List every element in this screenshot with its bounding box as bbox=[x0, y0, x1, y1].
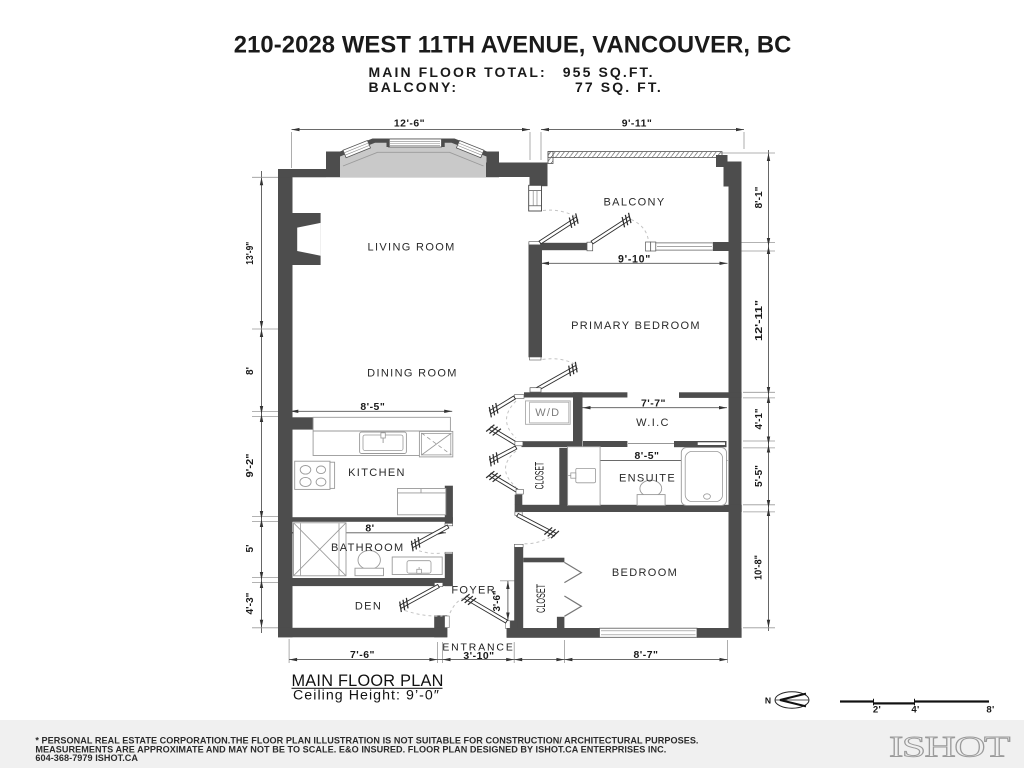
svg-text:604-368-7979 ISHOT.CA: 604-368-7979 ISHOT.CA bbox=[35, 753, 138, 763]
svg-text:ISHOT: ISHOT bbox=[889, 732, 1010, 764]
svg-text:MAIN FLOOR TOTAL:: MAIN FLOOR TOTAL: bbox=[369, 64, 547, 80]
svg-text:LIVING ROOM: LIVING ROOM bbox=[367, 241, 455, 253]
svg-text:3'-10": 3'-10" bbox=[463, 651, 494, 662]
svg-text:CLOSET: CLOSET bbox=[533, 461, 547, 489]
svg-text:N: N bbox=[765, 696, 771, 706]
svg-text:5'-5": 5'-5" bbox=[754, 465, 765, 487]
svg-text:8': 8' bbox=[986, 705, 994, 716]
svg-text:BEDROOM: BEDROOM bbox=[612, 567, 678, 579]
svg-text:7'-7": 7'-7" bbox=[641, 398, 666, 409]
svg-text:9'-2": 9'-2" bbox=[245, 453, 256, 477]
svg-text:9'-10": 9'-10" bbox=[618, 253, 651, 265]
svg-text:8': 8' bbox=[245, 367, 256, 375]
svg-text:9'-11": 9'-11" bbox=[622, 118, 653, 129]
svg-text:Ceiling Height: 9’-0″: Ceiling Height: 9’-0″ bbox=[293, 687, 440, 703]
svg-text:210-2028 WEST 11TH AVENUE, VAN: 210-2028 WEST 11TH AVENUE, VANCOUVER, BC bbox=[234, 32, 792, 59]
svg-text:ENSUITE: ENSUITE bbox=[619, 473, 676, 485]
svg-text:8'-1": 8'-1" bbox=[754, 186, 765, 208]
svg-text:KITCHEN: KITCHEN bbox=[348, 467, 406, 479]
svg-text:955 SQ.FT.: 955 SQ.FT. bbox=[563, 64, 655, 80]
svg-text:2': 2' bbox=[873, 705, 881, 716]
svg-text:W.I.C: W.I.C bbox=[636, 417, 670, 429]
svg-text:10'-8": 10'-8" bbox=[754, 555, 765, 580]
svg-text:BALCONY:: BALCONY: bbox=[369, 79, 459, 95]
svg-text:FOYER: FOYER bbox=[451, 584, 496, 596]
svg-text:DINING ROOM: DINING ROOM bbox=[367, 367, 458, 379]
svg-text:8': 8' bbox=[365, 523, 374, 534]
svg-text:8'-5": 8'-5" bbox=[360, 402, 385, 413]
svg-text:BATHROOM: BATHROOM bbox=[331, 542, 405, 554]
svg-text:PRIMARY BEDROOM: PRIMARY BEDROOM bbox=[571, 320, 701, 332]
svg-text:8'-7": 8'-7" bbox=[634, 650, 659, 661]
svg-text:BALCONY: BALCONY bbox=[603, 197, 665, 209]
svg-text:12'-6": 12'-6" bbox=[394, 118, 425, 129]
svg-text:W/D: W/D bbox=[535, 407, 560, 419]
svg-text:8'-5": 8'-5" bbox=[635, 451, 660, 462]
svg-text:CLOSET: CLOSET bbox=[534, 583, 548, 612]
svg-text:77 SQ. FT.: 77 SQ. FT. bbox=[575, 79, 663, 95]
svg-text:12'-11": 12'-11" bbox=[754, 300, 765, 341]
svg-text:DEN: DEN bbox=[355, 601, 382, 613]
svg-text:4'-3": 4'-3" bbox=[245, 592, 256, 614]
svg-text:5': 5' bbox=[245, 545, 256, 553]
svg-text:4': 4' bbox=[911, 705, 919, 716]
svg-text:7'-6": 7'-6" bbox=[350, 650, 375, 661]
svg-text:13'-9": 13'-9" bbox=[245, 241, 256, 264]
svg-text:4'-1": 4'-1" bbox=[754, 408, 765, 429]
